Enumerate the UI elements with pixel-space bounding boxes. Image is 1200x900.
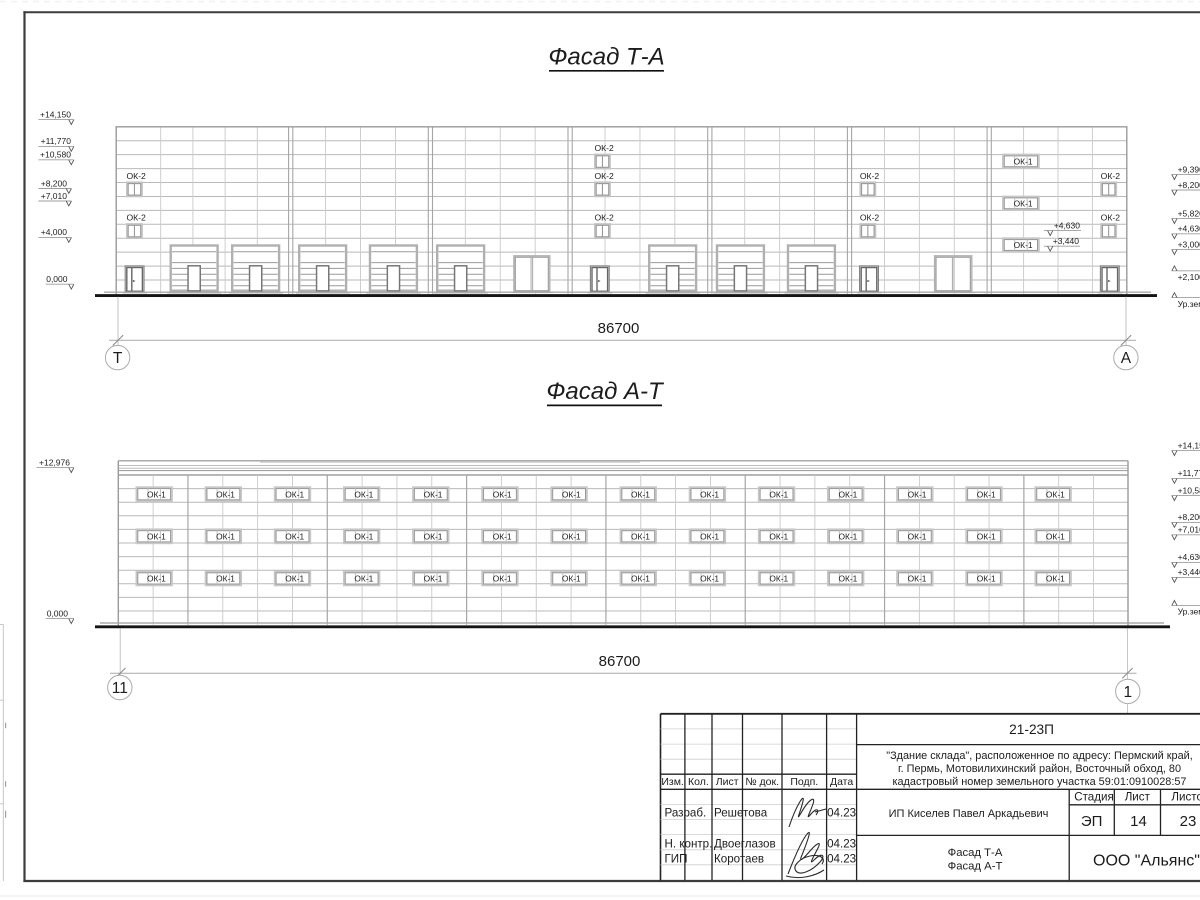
- svg-text:ОК-1: ОК-1: [424, 489, 443, 499]
- svg-text:ОК-1: ОК-1: [562, 489, 581, 499]
- svg-text:ОК-2: ОК-2: [594, 171, 614, 181]
- svg-text:+8,200: +8,200: [41, 178, 68, 188]
- svg-text:+8,200: +8,200: [1178, 512, 1200, 522]
- svg-text:ОК-2: ОК-2: [126, 213, 146, 223]
- svg-text:Ур.земли: Ур.земли: [1178, 607, 1200, 617]
- svg-text:ОК-1: ОК-1: [216, 574, 235, 584]
- svg-text:ОК-2: ОК-2: [860, 171, 880, 181]
- svg-text:ОК-2: ОК-2: [1101, 213, 1121, 223]
- svg-text:Лист: Лист: [1125, 790, 1151, 803]
- svg-text:ОК-1: ОК-1: [1014, 198, 1033, 208]
- svg-text:Фасад Т-А: Фасад Т-А: [948, 847, 1003, 859]
- svg-text:+5,820: +5,820: [1178, 208, 1200, 218]
- svg-text:ОК-1: ОК-1: [631, 489, 650, 499]
- svg-text:ОК-2: ОК-2: [1101, 171, 1121, 181]
- svg-text:04.23: 04.23: [827, 853, 856, 866]
- svg-text:Ур.земли: Ур.земли: [1178, 299, 1200, 309]
- svg-text:ОК-1: ОК-1: [424, 531, 443, 541]
- svg-text:+3,000: +3,000: [1178, 239, 1200, 249]
- svg-text:+7,010: +7,010: [41, 191, 68, 201]
- svg-text:ОК-1: ОК-1: [631, 531, 650, 541]
- svg-text:Фасад А-Т: Фасад А-Т: [948, 860, 1003, 872]
- svg-text:ОК-1: ОК-1: [908, 574, 927, 584]
- svg-text:ОК-1: ОК-1: [285, 531, 304, 541]
- svg-text:+11,770: +11,770: [41, 136, 72, 146]
- svg-text:№ док.: № док.: [745, 776, 779, 788]
- svg-text:+4,630: +4,630: [1178, 224, 1200, 234]
- svg-text:Кол.: Кол.: [688, 776, 709, 788]
- svg-text:ОК-1: ОК-1: [354, 574, 373, 584]
- svg-text:21-23П: 21-23П: [1009, 722, 1054, 737]
- svg-text:11: 11: [112, 680, 128, 697]
- svg-text:ОК-1: ОК-1: [631, 574, 650, 584]
- svg-text:+10,580: +10,580: [1178, 485, 1200, 495]
- svg-text:ИП Киселев Павел Аркадьевич: ИП Киселев Павел Аркадьевич: [889, 808, 1049, 820]
- svg-text:ОК-2: ОК-2: [594, 213, 614, 223]
- svg-text:ОК-1: ОК-1: [769, 489, 788, 499]
- svg-text:Коротаев: Коротаев: [714, 853, 764, 866]
- svg-text:04.23: 04.23: [827, 838, 856, 851]
- svg-text:ОК-1: ОК-1: [838, 489, 857, 499]
- svg-text:Решетова: Решетова: [714, 806, 768, 819]
- svg-text:ОК-1: ОК-1: [493, 489, 512, 499]
- svg-text:+10,580: +10,580: [40, 150, 71, 160]
- svg-text:ОК-1: ОК-1: [908, 531, 927, 541]
- svg-text:ОК-1: ОК-1: [838, 531, 857, 541]
- svg-text:Двоеглазов: Двоеглазов: [714, 838, 776, 851]
- svg-text:Подп.: Подп.: [790, 776, 818, 788]
- svg-text:+12,976: +12,976: [39, 457, 70, 467]
- svg-text:ЭП: ЭП: [1081, 813, 1103, 830]
- svg-text:Т: Т: [113, 350, 123, 367]
- svg-text:23: 23: [1180, 813, 1197, 830]
- svg-text:ОК-1: ОК-1: [216, 489, 235, 499]
- svg-text:ОК-1: ОК-1: [769, 574, 788, 584]
- svg-text:Н. контр.: Н. контр.: [665, 838, 713, 851]
- svg-text:ОК-1: ОК-1: [424, 574, 443, 584]
- svg-text:+7,010: +7,010: [1178, 525, 1200, 535]
- svg-text:Разраб.: Разраб.: [665, 806, 707, 819]
- svg-text:ОК-1: ОК-1: [700, 489, 719, 499]
- svg-text:ОК-1: ОК-1: [562, 574, 581, 584]
- svg-text:ОК-1: ОК-1: [1046, 489, 1065, 499]
- svg-text:ОК-1: ОК-1: [285, 574, 304, 584]
- svg-text:+4,630: +4,630: [1178, 552, 1200, 562]
- svg-text:"Здание склада", расположенное: "Здание склада", расположенное по адресу…: [886, 750, 1193, 762]
- svg-text:ОК-1: ОК-1: [493, 531, 512, 541]
- svg-text:0,000: 0,000: [47, 608, 69, 618]
- svg-text:+14,150: +14,150: [1178, 440, 1200, 450]
- svg-text:г. Пермь, Мотовилихинский райо: г. Пермь, Мотовилихинский район, Восточн…: [898, 763, 1181, 775]
- svg-text:ОК-1: ОК-1: [908, 489, 927, 499]
- svg-text:+11,770: +11,770: [1178, 468, 1200, 478]
- svg-text:ОК-1: ОК-1: [285, 489, 304, 499]
- svg-text:ОК-1: ОК-1: [147, 574, 166, 584]
- svg-text:04.23: 04.23: [827, 806, 856, 819]
- svg-text:ОК-1: ОК-1: [977, 489, 996, 499]
- svg-text:ОК-1: ОК-1: [1046, 574, 1065, 584]
- svg-text:+2,100: +2,100: [1178, 272, 1200, 282]
- svg-text:Фасад А-Т: Фасад А-Т: [546, 378, 665, 405]
- svg-text:ОК-1: ОК-1: [147, 531, 166, 541]
- svg-text:ОК-1: ОК-1: [562, 531, 581, 541]
- svg-text:ОК-1: ОК-1: [700, 531, 719, 541]
- svg-text:ОК-1: ОК-1: [354, 531, 373, 541]
- svg-text:+4,000: +4,000: [41, 227, 68, 237]
- svg-text:ОК-1: ОК-1: [493, 574, 512, 584]
- svg-text:ОК-1: ОК-1: [147, 489, 166, 499]
- svg-text:ГИП: ГИП: [665, 853, 688, 866]
- svg-text:14: 14: [1130, 813, 1147, 830]
- svg-text:Листов: Листов: [1171, 790, 1200, 803]
- svg-text:ОК-1: ОК-1: [977, 574, 996, 584]
- svg-text:ООО "Альянс": ООО "Альянс": [1093, 853, 1200, 870]
- svg-text:+3,440: +3,440: [1178, 567, 1200, 577]
- svg-text:+4,630: +4,630: [1054, 220, 1081, 230]
- svg-text:ОК-2: ОК-2: [594, 143, 614, 153]
- svg-text:86700: 86700: [598, 320, 640, 337]
- svg-text:ОК-2: ОК-2: [126, 171, 146, 181]
- svg-text:ОК-1: ОК-1: [769, 531, 788, 541]
- svg-text:ОК-2: ОК-2: [860, 213, 880, 223]
- svg-text:Изм.: Изм.: [661, 776, 684, 788]
- svg-text:ОК-1: ОК-1: [1046, 531, 1065, 541]
- svg-text:ОК-1: ОК-1: [700, 574, 719, 584]
- svg-text:ОК-1: ОК-1: [354, 489, 373, 499]
- svg-text:А: А: [1121, 350, 1132, 367]
- svg-text:ОК-1: ОК-1: [1014, 240, 1033, 250]
- svg-text:+9,390: +9,390: [1178, 164, 1200, 174]
- svg-text:Дата: Дата: [830, 776, 853, 788]
- svg-text:ОК-1: ОК-1: [216, 531, 235, 541]
- svg-text:+14,150: +14,150: [40, 109, 71, 119]
- svg-text:Фасад Т-А: Фасад Т-А: [548, 44, 664, 71]
- svg-text:+3,440: +3,440: [1053, 236, 1080, 246]
- svg-text:кадастровый номер земельного у: кадастровый номер земельного участка 59:…: [893, 776, 1187, 788]
- svg-text:+8,200: +8,200: [1178, 180, 1200, 190]
- svg-text:1: 1: [1123, 684, 1132, 701]
- svg-text:Лист: Лист: [716, 776, 739, 788]
- svg-text:ОК-1: ОК-1: [1014, 156, 1033, 166]
- svg-text:86700: 86700: [599, 653, 641, 670]
- svg-text:ОК-1: ОК-1: [977, 531, 996, 541]
- svg-text:0,000: 0,000: [46, 274, 68, 284]
- svg-text:ОК-1: ОК-1: [838, 574, 857, 584]
- svg-text:Стадия: Стадия: [1074, 790, 1114, 803]
